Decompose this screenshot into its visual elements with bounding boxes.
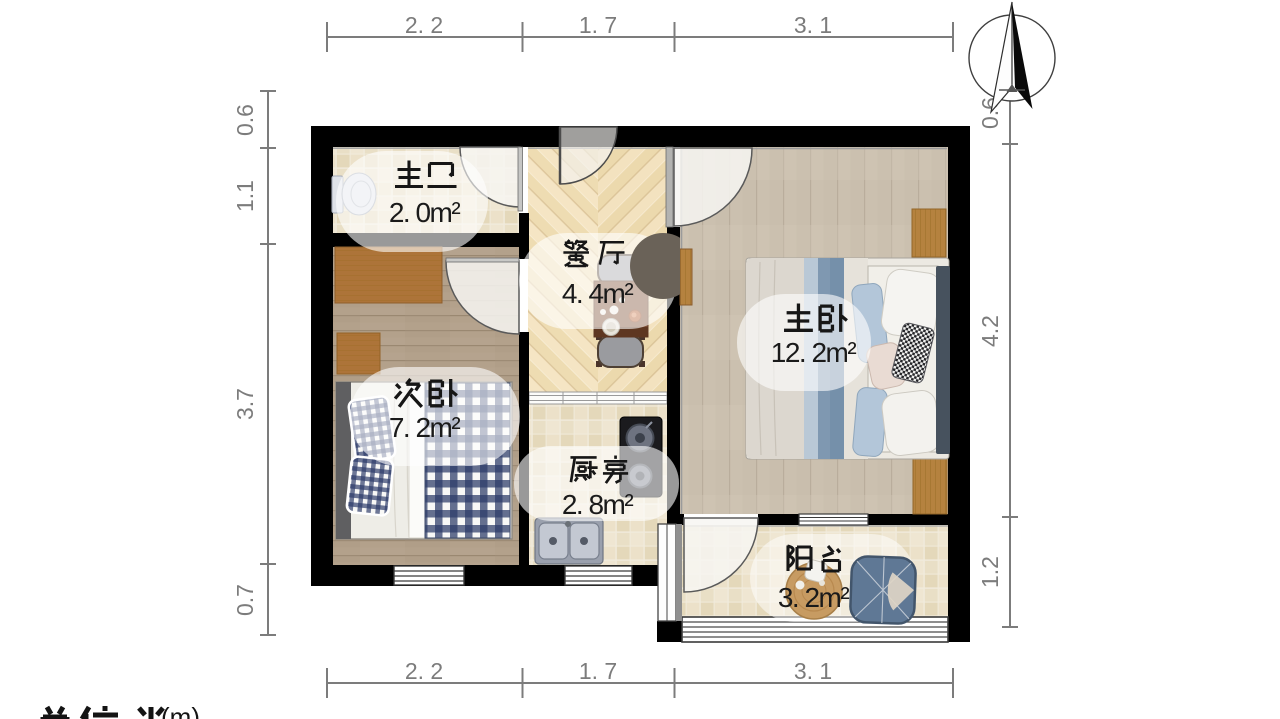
svg-text:1.1: 1.1 [232, 180, 258, 212]
svg-text:2. 2: 2. 2 [405, 12, 443, 38]
svg-text:1.2: 1.2 [977, 556, 1003, 588]
svg-text:12. 2m²: 12. 2m² [771, 337, 857, 368]
svg-text:2. 2: 2. 2 [405, 658, 443, 684]
svg-text:(m): (m) [161, 702, 200, 719]
svg-text:4. 4m²: 4. 4m² [562, 278, 634, 309]
svg-text:2. 8m²: 2. 8m² [562, 489, 634, 520]
svg-text:3. 2m²: 3. 2m² [778, 582, 850, 613]
svg-text:3.7: 3.7 [232, 388, 258, 420]
svg-text:0.7: 0.7 [232, 584, 258, 616]
svg-text:0.6: 0.6 [232, 104, 258, 136]
svg-text:1. 7: 1. 7 [579, 658, 617, 684]
svg-text:3. 1: 3. 1 [794, 12, 832, 38]
svg-text:1. 7: 1. 7 [579, 12, 617, 38]
svg-text:4.2: 4.2 [977, 315, 1003, 347]
svg-text:2. 0m²: 2. 0m² [389, 197, 461, 228]
svg-text:3. 1: 3. 1 [794, 658, 832, 684]
svg-text:7. 2m²: 7. 2m² [389, 412, 461, 443]
